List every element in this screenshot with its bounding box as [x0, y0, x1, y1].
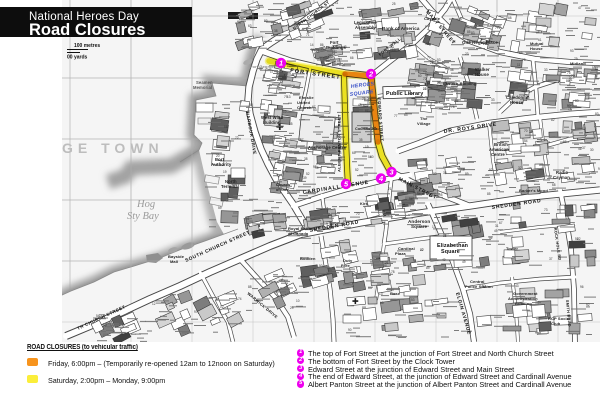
svg-text:58: 58 — [331, 164, 335, 168]
svg-text:70: 70 — [356, 212, 360, 216]
svg-text:89: 89 — [465, 172, 469, 176]
svg-text:65: 65 — [352, 151, 356, 155]
svg-text:54: 54 — [368, 155, 372, 159]
svg-text:22: 22 — [423, 87, 427, 91]
svg-text:38: 38 — [450, 68, 454, 72]
svg-text:33: 33 — [491, 98, 495, 102]
svg-text:49: 49 — [494, 229, 498, 233]
svg-text:94: 94 — [429, 87, 433, 91]
svg-text:88: 88 — [248, 285, 252, 289]
svg-text:Square: Square — [441, 249, 460, 255]
svg-text:Authority: Authority — [211, 162, 232, 167]
svg-text:83: 83 — [471, 31, 475, 35]
svg-text:Building: Building — [515, 301, 532, 306]
svg-text:43: 43 — [515, 284, 519, 288]
svg-text:52: 52 — [363, 104, 367, 108]
svg-text:Sty Bay: Sty Bay — [127, 211, 159, 222]
svg-text:88: 88 — [249, 103, 253, 107]
svg-text:95: 95 — [332, 61, 336, 65]
svg-text:Eastern Building: Eastern Building — [443, 81, 477, 86]
svg-text:70: 70 — [524, 129, 528, 133]
svg-text:House: House — [510, 100, 524, 105]
svg-text:53: 53 — [326, 59, 330, 63]
svg-text:of God: of God — [276, 188, 289, 192]
svg-text:95: 95 — [439, 193, 443, 197]
svg-text:Public Library: Public Library — [386, 91, 423, 97]
svg-text:96: 96 — [430, 59, 434, 63]
svg-text:Hog: Hog — [136, 199, 155, 210]
svg-text:Bodden: Bodden — [300, 256, 316, 261]
svg-text:Free: Free — [341, 263, 351, 268]
svg-text:81: 81 — [455, 99, 459, 103]
svg-text:63: 63 — [248, 24, 252, 28]
svg-text:50: 50 — [319, 264, 323, 268]
svg-text:38: 38 — [274, 29, 278, 33]
svg-text:81: 81 — [595, 67, 599, 71]
svg-text:93: 93 — [264, 19, 268, 23]
svg-text:53: 53 — [313, 108, 317, 112]
svg-text:77: 77 — [495, 26, 499, 30]
svg-text:42: 42 — [548, 175, 552, 179]
svg-text:56: 56 — [575, 237, 579, 241]
svg-text:of Canada: of Canada — [288, 231, 309, 236]
svg-text:27: 27 — [282, 159, 286, 163]
svg-text:32: 32 — [518, 166, 522, 170]
svg-text:88: 88 — [508, 16, 512, 20]
svg-text:Cayman: Cayman — [553, 175, 570, 180]
svg-text:Terminal: Terminal — [221, 184, 239, 189]
svg-text:Barker's Mood: Barker's Mood — [519, 188, 548, 193]
svg-text:17: 17 — [432, 225, 436, 229]
svg-text:65: 65 — [509, 90, 513, 94]
svg-text:00 yards: 00 yards — [67, 55, 88, 61]
svg-text:33: 33 — [544, 68, 548, 72]
svg-text:37: 37 — [248, 38, 252, 42]
svg-text:4: 4 — [378, 174, 383, 183]
svg-text:Kirk: Kirk — [360, 202, 369, 206]
svg-text:11: 11 — [517, 63, 521, 67]
svg-text:13: 13 — [287, 95, 291, 99]
svg-text:14: 14 — [310, 43, 314, 47]
svg-text:37: 37 — [582, 146, 586, 150]
svg-text:90: 90 — [348, 328, 352, 332]
svg-text:1: 1 — [279, 59, 283, 68]
svg-text:59: 59 — [218, 206, 222, 210]
svg-text:51: 51 — [246, 217, 250, 221]
svg-text:49: 49 — [434, 101, 438, 105]
svg-text:Memorial: Memorial — [193, 85, 212, 90]
svg-text:2: 2 — [368, 70, 374, 79]
svg-text:45: 45 — [358, 103, 362, 107]
svg-text:47: 47 — [578, 6, 582, 10]
svg-text:27: 27 — [328, 54, 332, 58]
svg-text:Courthouse: Courthouse — [355, 127, 377, 131]
svg-text:38: 38 — [304, 157, 308, 161]
svg-text:GE TOWN: GE TOWN — [62, 140, 164, 156]
svg-text:35: 35 — [359, 138, 363, 142]
svg-text:93: 93 — [570, 49, 574, 53]
svg-text:22: 22 — [571, 74, 575, 78]
svg-text:83: 83 — [575, 99, 579, 103]
svg-text:19: 19 — [365, 145, 369, 149]
svg-text:54: 54 — [311, 48, 315, 52]
svg-text:35: 35 — [289, 122, 293, 126]
svg-text:78: 78 — [391, 270, 395, 274]
svg-text:84: 84 — [407, 81, 411, 85]
svg-text:Cayside: Cayside — [424, 16, 441, 21]
svg-text:37: 37 — [549, 257, 553, 261]
svg-text:30: 30 — [590, 148, 594, 152]
svg-text:Fort George: Fort George — [250, 64, 275, 69]
svg-text:Building: Building — [263, 120, 281, 125]
svg-text:49: 49 — [462, 260, 466, 264]
svg-text:54: 54 — [524, 139, 528, 143]
svg-text:Church: Church — [297, 105, 312, 110]
svg-text:Midland: Midland — [570, 61, 586, 66]
svg-text:House: House — [530, 46, 543, 51]
svg-text:51: 51 — [446, 98, 450, 102]
svg-text:77: 77 — [394, 114, 398, 118]
svg-text:Plaza: Plaza — [395, 251, 406, 256]
svg-text:82: 82 — [551, 118, 555, 122]
svg-text:94: 94 — [409, 197, 413, 201]
svg-text:53: 53 — [411, 298, 415, 302]
svg-text:98: 98 — [563, 140, 567, 144]
svg-text:51: 51 — [423, 158, 427, 162]
svg-text:78: 78 — [362, 97, 366, 101]
svg-text:One Regis Place: One Regis Place — [462, 40, 498, 45]
svg-text:13: 13 — [379, 292, 383, 296]
svg-text:52: 52 — [489, 168, 493, 172]
svg-text:Tower: Tower — [506, 246, 518, 251]
svg-text:Centre: Centre — [491, 152, 505, 157]
svg-text:22: 22 — [420, 248, 424, 252]
svg-text:10: 10 — [296, 299, 300, 303]
svg-text:66: 66 — [350, 56, 354, 60]
svg-text:Village: Village — [417, 121, 431, 126]
svg-text:96: 96 — [580, 285, 584, 289]
svg-text:10: 10 — [283, 110, 287, 114]
svg-text:89: 89 — [426, 266, 430, 270]
svg-text:87: 87 — [365, 109, 369, 113]
svg-text:46: 46 — [425, 42, 429, 46]
svg-text:57: 57 — [283, 228, 287, 232]
svg-text:72: 72 — [235, 136, 239, 140]
svg-text:74: 74 — [238, 297, 242, 301]
svg-text:25: 25 — [392, 2, 396, 6]
svg-text:29: 29 — [290, 306, 294, 310]
svg-text:78: 78 — [451, 105, 455, 109]
svg-text:51: 51 — [224, 125, 228, 129]
svg-text:12: 12 — [220, 305, 224, 309]
svg-text:87: 87 — [300, 138, 304, 142]
svg-text:Square: Square — [411, 224, 428, 229]
svg-text:11: 11 — [335, 1, 339, 5]
svg-text:ALBERT PANTON STREET: ALBERT PANTON STREET — [337, 114, 342, 172]
svg-text:53: 53 — [437, 58, 441, 62]
svg-text:19: 19 — [223, 170, 227, 174]
svg-text:50: 50 — [567, 104, 571, 108]
svg-text:Mall: Mall — [170, 259, 178, 264]
svg-text:Club: Club — [551, 321, 561, 326]
svg-text:25: 25 — [465, 73, 469, 77]
svg-text:17: 17 — [270, 70, 274, 74]
svg-text:21: 21 — [388, 187, 392, 191]
svg-text:33: 33 — [433, 172, 437, 176]
svg-text:46: 46 — [578, 147, 582, 151]
svg-text:82: 82 — [426, 81, 430, 85]
svg-text:53: 53 — [592, 66, 596, 70]
svg-text:49: 49 — [442, 258, 446, 262]
svg-text:29: 29 — [529, 130, 533, 134]
svg-text:51: 51 — [489, 236, 493, 240]
svg-text:Anchorage Centre: Anchorage Centre — [308, 145, 346, 150]
svg-text:65: 65 — [380, 301, 384, 305]
svg-text:63: 63 — [404, 113, 408, 117]
svg-text:52: 52 — [306, 172, 310, 176]
svg-text:52: 52 — [355, 168, 359, 172]
svg-text:21: 21 — [316, 49, 320, 53]
svg-text:92: 92 — [586, 303, 590, 307]
svg-text:71: 71 — [306, 33, 310, 37]
svg-text:Church: Church — [276, 183, 290, 187]
svg-text:39: 39 — [303, 176, 307, 180]
svg-text:66: 66 — [519, 51, 523, 55]
svg-text:Buildings: Buildings — [326, 45, 347, 50]
svg-text:73: 73 — [544, 208, 548, 212]
svg-text:21: 21 — [385, 261, 389, 265]
svg-text:68: 68 — [552, 183, 556, 187]
svg-text:85: 85 — [487, 192, 491, 196]
svg-text:12: 12 — [152, 302, 156, 306]
svg-text:21: 21 — [569, 78, 573, 82]
svg-text:81: 81 — [437, 81, 441, 85]
svg-text:23: 23 — [465, 52, 469, 56]
svg-text:79: 79 — [103, 324, 107, 328]
svg-text:60: 60 — [418, 74, 422, 78]
svg-text:Bank of America: Bank of America — [382, 26, 420, 31]
svg-text:100 metres: 100 metres — [74, 43, 100, 49]
svg-text:83: 83 — [595, 112, 599, 116]
svg-text:Assembly: Assembly — [355, 25, 376, 30]
svg-text:House: House — [475, 72, 489, 77]
svg-text:Rose: Rose — [390, 291, 401, 296]
svg-text:78: 78 — [321, 47, 325, 51]
svg-text:Police Station: Police Station — [465, 284, 493, 289]
svg-text:33: 33 — [443, 171, 447, 175]
svg-text:67: 67 — [499, 221, 503, 225]
svg-text:✚: ✚ — [352, 297, 359, 306]
svg-text:97: 97 — [194, 310, 198, 314]
svg-text:78: 78 — [522, 58, 526, 62]
svg-text:85: 85 — [443, 234, 447, 238]
svg-text:86: 86 — [566, 79, 570, 83]
svg-text:98: 98 — [313, 165, 317, 169]
svg-text:13: 13 — [392, 48, 396, 52]
